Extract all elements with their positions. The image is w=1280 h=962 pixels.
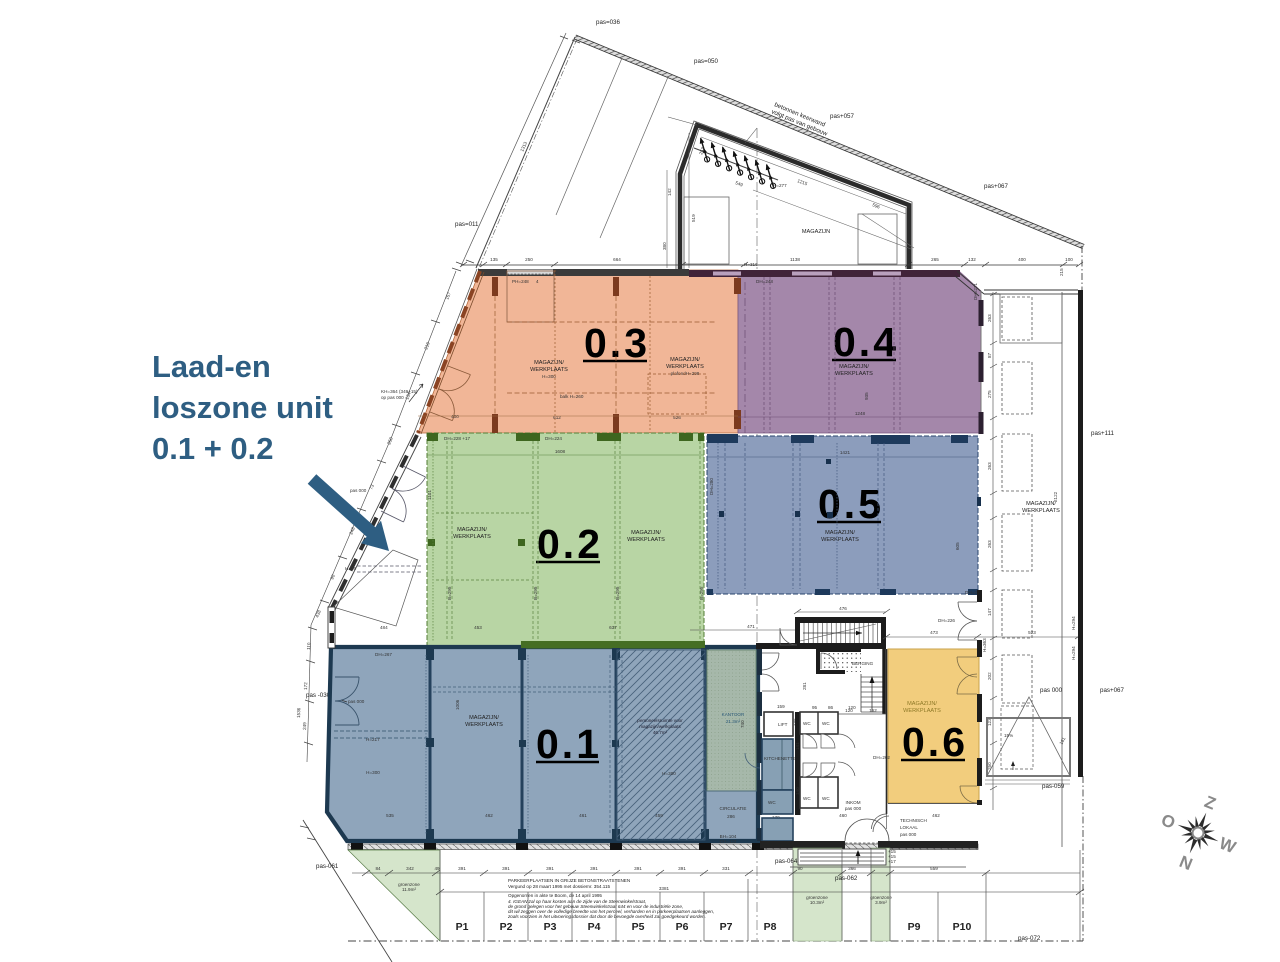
svg-text:H=277: H=277 bbox=[773, 183, 787, 188]
svg-text:95: 95 bbox=[812, 705, 818, 710]
svg-text:WERKPLAATS: WERKPLAATS bbox=[835, 371, 873, 377]
svg-text:275: 275 bbox=[987, 390, 992, 398]
svg-text:loszone unit: loszone unit bbox=[152, 390, 333, 425]
svg-text:0.4: 0.4 bbox=[833, 319, 899, 365]
svg-text:WC: WC bbox=[822, 721, 830, 726]
svg-text:H=300: H=300 bbox=[542, 374, 556, 379]
svg-text:Laad-en: Laad-en bbox=[152, 349, 271, 384]
svg-text:pas=011: pas=011 bbox=[455, 221, 479, 228]
svg-text:DH=228 +17: DH=228 +17 bbox=[444, 436, 470, 441]
svg-text:plafondH=298: plafondH=298 bbox=[671, 371, 700, 376]
svg-text:H=217: H=217 bbox=[366, 737, 380, 742]
svg-text:P10: P10 bbox=[953, 921, 972, 933]
svg-text:B=295: B=295 bbox=[533, 586, 538, 600]
svg-text:740: 740 bbox=[740, 720, 745, 728]
svg-text:473: 473 bbox=[930, 630, 938, 635]
svg-text:250: 250 bbox=[525, 257, 533, 262]
svg-text:11.9m²: 11.9m² bbox=[402, 887, 416, 892]
svg-text:P2: P2 bbox=[500, 921, 513, 933]
svg-text:LIFT: LIFT bbox=[778, 722, 788, 727]
svg-text:pas+057: pas+057 bbox=[830, 113, 854, 120]
svg-text:391: 391 bbox=[502, 866, 510, 871]
svg-text:pas 000: pas 000 bbox=[845, 806, 862, 811]
svg-text:P9: P9 bbox=[908, 921, 921, 933]
svg-text:MAGAZIJN/: MAGAZIJN/ bbox=[469, 715, 499, 721]
svg-text:DH=271: DH=271 bbox=[973, 283, 978, 300]
svg-text:Vergund op 28 maart 1995 met d: Vergund op 28 maart 1995 met dossiernr. … bbox=[508, 884, 611, 889]
svg-text:WERKPLAATS: WERKPLAATS bbox=[465, 722, 503, 728]
svg-text:TECHNISCH: TECHNISCH bbox=[900, 818, 927, 823]
svg-text:MAGAZIJN/: MAGAZIJN/ bbox=[631, 530, 661, 536]
svg-text:PARKEERPLAATSEN IN GRIJZE BETO: PARKEERPLAATSEN IN GRIJZE BETONSTRAATSTE… bbox=[508, 878, 630, 883]
svg-text:DH=122: DH=122 bbox=[720, 839, 737, 844]
svg-text:100: 100 bbox=[1065, 257, 1073, 262]
svg-text:476: 476 bbox=[839, 606, 847, 611]
svg-text:pas+111: pas+111 bbox=[1091, 430, 1115, 437]
svg-text:MAGAZIJN/: MAGAZIJN/ bbox=[839, 364, 869, 370]
svg-text:484: 484 bbox=[380, 625, 388, 630]
svg-text:453: 453 bbox=[474, 625, 482, 630]
svg-text:0.2: 0.2 bbox=[537, 521, 603, 567]
svg-text:PH=248: PH=248 bbox=[512, 279, 529, 284]
svg-text:DH=226: DH=226 bbox=[938, 618, 955, 623]
svg-text:0.6: 0.6 bbox=[902, 719, 968, 765]
svg-text:CIRCULATIE: CIRCULATIE bbox=[720, 806, 747, 811]
svg-text:pas+067: pas+067 bbox=[1100, 687, 1124, 694]
svg-text:KANTOOR: KANTOOR bbox=[722, 712, 745, 717]
svg-text:WERKPLAATS: WERKPLAATS bbox=[530, 367, 568, 373]
svg-text:110: 110 bbox=[306, 642, 312, 650]
svg-text:461: 461 bbox=[579, 813, 587, 818]
svg-text:H=363: H=363 bbox=[982, 638, 987, 652]
svg-text:3.9m²: 3.9m² bbox=[875, 900, 887, 905]
svg-text:BERGING: BERGING bbox=[852, 661, 874, 666]
svg-text:2122: 2122 bbox=[1053, 491, 1058, 502]
svg-text:WC: WC bbox=[803, 796, 811, 801]
svg-text:H=294: H=294 bbox=[1071, 646, 1076, 660]
svg-text:KH=364 (349+15): KH=364 (349+15) bbox=[381, 389, 418, 394]
svg-text:935: 935 bbox=[864, 392, 869, 400]
svg-text:WERKPLAATS: WERKPLAATS bbox=[666, 364, 704, 370]
svg-text:263: 263 bbox=[987, 540, 992, 548]
svg-text:DH=248: DH=248 bbox=[756, 279, 773, 284]
svg-text:1006: 1006 bbox=[455, 699, 460, 710]
svg-text:pas-072: pas-072 bbox=[1018, 935, 1041, 942]
svg-text:WC: WC bbox=[803, 721, 811, 726]
svg-text:LOKAAL: LOKAAL bbox=[900, 825, 918, 830]
svg-text:90: 90 bbox=[797, 866, 803, 871]
svg-text:zoals voorzien in het uitvoeri: zoals voorzien in het uitvoeringsdossier… bbox=[507, 914, 706, 919]
svg-text:WC: WC bbox=[768, 800, 776, 805]
svg-text:391: 391 bbox=[590, 866, 598, 871]
svg-text:4: 4 bbox=[536, 279, 539, 284]
svg-text:pas-062: pas-062 bbox=[835, 875, 858, 882]
svg-text:P4: P4 bbox=[588, 921, 601, 933]
svg-text:391: 391 bbox=[678, 866, 686, 871]
svg-text:P5: P5 bbox=[632, 921, 645, 933]
svg-text:pas-064: pas-064 bbox=[775, 858, 798, 865]
svg-text:DH=267: DH=267 bbox=[375, 652, 392, 657]
svg-text:0.5: 0.5 bbox=[818, 481, 884, 527]
svg-text:1536: 1536 bbox=[296, 707, 301, 718]
svg-text:519: 519 bbox=[691, 214, 696, 222]
svg-text:380: 380 bbox=[662, 242, 667, 250]
svg-text:142: 142 bbox=[667, 188, 672, 196]
svg-text:0.3: 0.3 bbox=[584, 320, 650, 366]
svg-text:459: 459 bbox=[655, 813, 663, 818]
svg-text:49: 49 bbox=[434, 866, 440, 871]
svg-text:H=300: H=300 bbox=[366, 770, 380, 775]
svg-text:342: 342 bbox=[406, 866, 414, 871]
svg-text:+17: +17 bbox=[888, 859, 896, 864]
svg-text:21.3m²: 21.3m² bbox=[726, 719, 741, 724]
svg-text:281: 281 bbox=[802, 682, 807, 690]
svg-text:H=294: H=294 bbox=[1071, 616, 1076, 630]
svg-text:263: 263 bbox=[987, 462, 992, 470]
svg-text:265: 265 bbox=[931, 257, 939, 262]
svg-text:pas+067: pas+067 bbox=[984, 183, 1008, 190]
svg-text:MAGAZIJN/: MAGAZIJN/ bbox=[457, 527, 487, 533]
svg-text:559: 559 bbox=[930, 866, 938, 871]
svg-text:pas -030: pas -030 bbox=[306, 692, 331, 699]
svg-text:87: 87 bbox=[987, 352, 992, 358]
svg-text:249: 249 bbox=[302, 722, 307, 730]
svg-text:B=295: B=295 bbox=[699, 586, 704, 600]
svg-text:pas-061: pas-061 bbox=[316, 863, 339, 870]
svg-text:MAGAZIJN/: MAGAZIJN/ bbox=[670, 357, 700, 363]
svg-text:INKOM: INKOM bbox=[845, 800, 860, 805]
svg-text:op pas 000: op pas 000 bbox=[381, 395, 404, 400]
svg-text:MAGAZIJN/: MAGAZIJN/ bbox=[1026, 501, 1056, 507]
svg-text:215: 215 bbox=[1059, 268, 1064, 276]
svg-text:1138: 1138 bbox=[790, 257, 800, 262]
svg-text:pas 000: pas 000 bbox=[348, 699, 365, 704]
svg-text:202: 202 bbox=[987, 672, 992, 680]
svg-text:120: 120 bbox=[848, 705, 856, 710]
svg-text:P1: P1 bbox=[456, 921, 469, 933]
svg-text:P8: P8 bbox=[764, 921, 777, 933]
svg-text:personeelsruimte voor: personeelsruimte voor bbox=[637, 718, 683, 723]
svg-text:Opgenomen in akte te Boom, de: Opgenomen in akte te Boom, de 14 april 1… bbox=[508, 893, 602, 898]
svg-text:391: 391 bbox=[546, 866, 554, 871]
svg-text:MAGAZIJN/: MAGAZIJN/ bbox=[907, 701, 937, 707]
svg-text:1101: 1101 bbox=[427, 490, 432, 500]
svg-text:172: 172 bbox=[303, 682, 308, 690]
svg-text:H=300: H=300 bbox=[662, 771, 676, 776]
svg-text:WC: WC bbox=[822, 796, 830, 801]
svg-text:263: 263 bbox=[987, 314, 992, 322]
svg-text:366: 366 bbox=[848, 866, 856, 871]
svg-text:147: 147 bbox=[987, 608, 992, 616]
svg-text:pas 000: pas 000 bbox=[1040, 687, 1063, 694]
svg-text:DH=224: DH=224 bbox=[545, 436, 562, 441]
svg-text:331: 331 bbox=[722, 866, 730, 871]
svg-text:WERKPLAATS: WERKPLAATS bbox=[627, 537, 665, 543]
svg-text:471: 471 bbox=[747, 624, 755, 629]
svg-text:86: 86 bbox=[828, 705, 834, 710]
svg-text:15%: 15% bbox=[1004, 733, 1013, 738]
svg-text:pas 000: pas 000 bbox=[900, 832, 917, 837]
svg-text:535: 535 bbox=[386, 813, 394, 818]
svg-text:637: 637 bbox=[609, 625, 617, 630]
svg-text:462: 462 bbox=[485, 813, 493, 818]
svg-text:WERKPLAATS: WERKPLAATS bbox=[453, 534, 491, 540]
svg-text:B=295: B=295 bbox=[615, 586, 620, 600]
svg-text:DH=280: DH=280 bbox=[709, 478, 714, 495]
svg-text:pas=036: pas=036 bbox=[596, 19, 620, 26]
svg-text:0.1 + 0.2: 0.1 + 0.2 bbox=[152, 431, 274, 466]
svg-text:400: 400 bbox=[451, 414, 459, 419]
svg-text:391: 391 bbox=[458, 866, 466, 871]
svg-text:WERKPLAATS: WERKPLAATS bbox=[903, 708, 941, 714]
svg-text:magazijn/werkplaats: magazijn/werkplaats bbox=[639, 724, 681, 729]
svg-text:132: 132 bbox=[968, 257, 976, 262]
svg-text:462: 462 bbox=[932, 813, 940, 818]
svg-text:B=295: B=295 bbox=[447, 586, 452, 600]
svg-text:KITCHENETTE: KITCHENETTE bbox=[764, 756, 796, 761]
svg-text:140: 140 bbox=[795, 787, 800, 795]
svg-text:3381: 3381 bbox=[659, 886, 670, 891]
svg-text:605: 605 bbox=[955, 542, 960, 550]
svg-text:pas 000: pas 000 bbox=[350, 488, 367, 493]
svg-text:460: 460 bbox=[839, 813, 847, 818]
svg-text:MAGAZIJN/: MAGAZIJN/ bbox=[825, 530, 855, 536]
svg-text:DH=202: DH=202 bbox=[873, 755, 890, 760]
svg-text:pas=050: pas=050 bbox=[694, 58, 718, 65]
svg-text:P3: P3 bbox=[544, 921, 557, 933]
svg-text:10.3m²: 10.3m² bbox=[810, 900, 825, 905]
svg-text:152: 152 bbox=[869, 708, 877, 713]
svg-text:WERKPLAATS: WERKPLAATS bbox=[821, 537, 859, 543]
svg-text:MAGAZIJN: MAGAZIJN bbox=[802, 229, 830, 235]
svg-text:46.7m²: 46.7m² bbox=[653, 730, 668, 735]
svg-text:P7: P7 bbox=[720, 921, 733, 933]
svg-text:391: 391 bbox=[634, 866, 642, 871]
svg-text:1608: 1608 bbox=[555, 449, 566, 454]
svg-text:balk H=260: balk H=260 bbox=[560, 394, 584, 399]
svg-text:141: 141 bbox=[795, 742, 800, 750]
svg-text:664: 664 bbox=[613, 257, 621, 262]
svg-text:0.1: 0.1 bbox=[536, 721, 602, 767]
svg-text:1248: 1248 bbox=[855, 411, 866, 416]
svg-text:135: 135 bbox=[490, 257, 498, 262]
svg-text:400: 400 bbox=[1018, 257, 1026, 262]
svg-text:P6: P6 bbox=[676, 921, 689, 933]
svg-text:WERKPLAATS: WERKPLAATS bbox=[1022, 508, 1060, 514]
svg-text:MAGAZIJN/: MAGAZIJN/ bbox=[534, 360, 564, 366]
svg-text:H=26: H=26 bbox=[345, 566, 357, 571]
svg-text:H=316: H=316 bbox=[744, 262, 758, 267]
svg-text:84: 84 bbox=[375, 866, 381, 871]
svg-text:286: 286 bbox=[727, 814, 735, 819]
svg-text:1421: 1421 bbox=[840, 450, 851, 455]
svg-text:159: 159 bbox=[777, 704, 785, 709]
